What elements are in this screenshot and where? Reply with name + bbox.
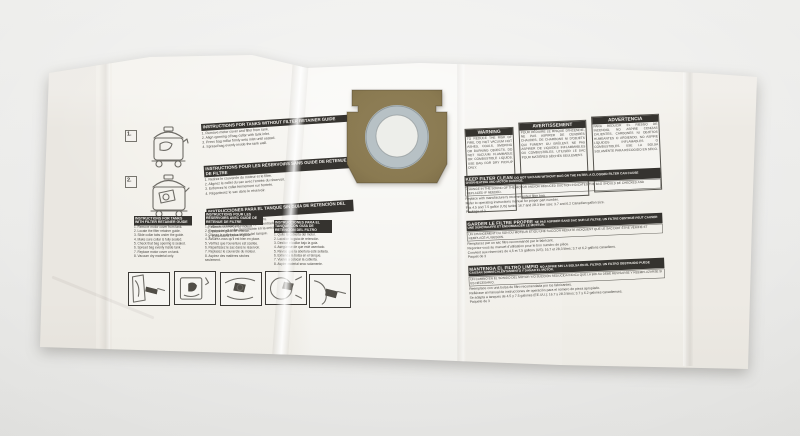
step-2-number: 2. [126, 177, 137, 183]
warning-body-fr: POUR RÉDUIRE LE RISQUE D'INCENDIE, NE PA… [520, 128, 587, 161]
wet-dry-vacuum-illustration-2 [145, 168, 191, 223]
press-collar-on-inlet-icon [220, 272, 262, 306]
filter-bag: 1. 2. [0, 0, 800, 436]
guide-body-en: 1. Remove motor cover from tank.2. Locat… [134, 225, 192, 258]
product-photo: 1. 2. [0, 0, 800, 436]
cardboard-collar [346, 89, 448, 189]
guide-body-fr: 1. Retirez le couvercle du moteur.2. Rep… [205, 225, 263, 262]
step-1-number: 1. [126, 131, 137, 137]
step-2-badge: 2. [125, 176, 137, 188]
fold-crease-right [683, 66, 693, 366]
insert-collar-into-guide-icon [128, 272, 170, 306]
warning-panel: WARNING TO REDUCE THE RISK OF FIRE, DO N… [462, 110, 660, 118]
guide-header-es: Instrucciones para el tanque con guía de… [274, 220, 332, 233]
step-1-badge: 1. [125, 130, 137, 142]
filter-bag-wrap: 1. 2. [0, 0, 800, 436]
warning-body-en: TO REDUCE THE RISK OF FIRE, DO NOT VACUU… [466, 135, 514, 171]
guide-header-en: Instructions for tanks with filter retai… [134, 216, 192, 225]
guide-header-fr: Instructions pour les réservoirs avec gu… [205, 212, 263, 225]
fold-crease-left [99, 60, 110, 350]
guide-body-es: 1. Quite la cubierta del motor.2. Locali… [274, 233, 332, 266]
position-bag-in-tank-icon [174, 271, 216, 305]
fold-crease-mid-right [457, 62, 466, 362]
reattach-hose-icon [309, 274, 351, 308]
instructions-without-guide: Instructions for tanks without filter re… [201, 115, 348, 124]
wet-dry-vacuum-illustration-1 [147, 120, 189, 173]
warning-body-es: PARA REDUCIR EL RIESGO DE INCENDIO, NO A… [592, 122, 659, 155]
check-collar-seated-icon [265, 271, 307, 305]
filter-care-es: MANTENGA EL FILTRO LIMPIONO ASPIRE SIN L… [468, 258, 667, 344]
